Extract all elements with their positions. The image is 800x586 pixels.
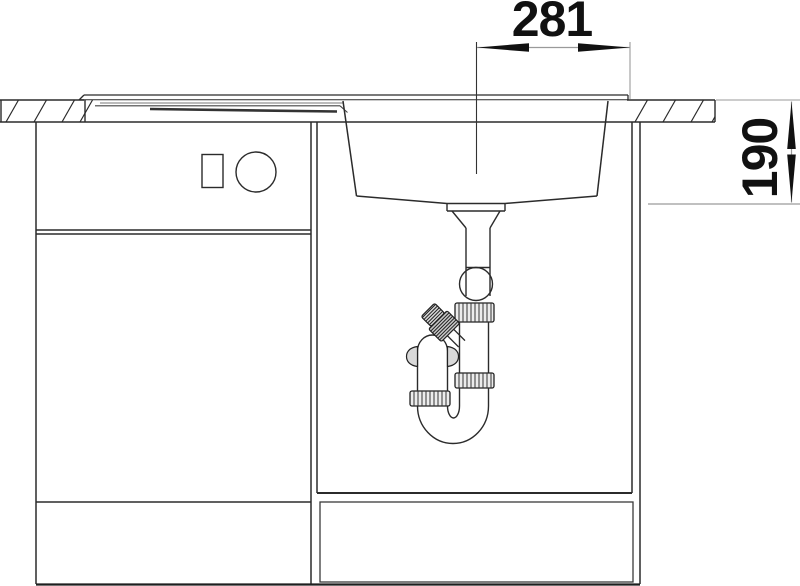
siphon-trap [407,301,495,444]
control-knob [236,152,276,192]
drainboard [95,103,348,113]
union-nut-lower [410,391,450,406]
union-nut-middle [455,373,494,388]
dimension-width-label: 281 [502,0,602,45]
control-display [202,155,223,188]
sink-rim [79,95,628,100]
trap-ball-joint [460,268,493,301]
hatch-lines-left [6,100,93,122]
technical-drawing-canvas: 281 190 [0,0,800,586]
plinth-panel [320,502,633,582]
drawing-linework [0,0,800,586]
trap-inlet-riser [418,335,448,391]
countertop-right-section [627,100,715,122]
sink-cabinet [317,122,640,584]
lug-right [448,347,459,367]
drain-flange [447,204,505,229]
lug-left [407,347,418,367]
sink-bowl [343,101,608,204]
dimension-depth-label: 190 [734,108,786,208]
arrowhead-down [787,155,796,203]
hatch-lines-right [635,100,715,122]
left-cabinet [36,122,311,584]
union-nut-upper [455,303,494,322]
drain-tailpipe [466,228,490,296]
arrowhead-up [787,102,796,150]
u-bend [418,406,489,444]
